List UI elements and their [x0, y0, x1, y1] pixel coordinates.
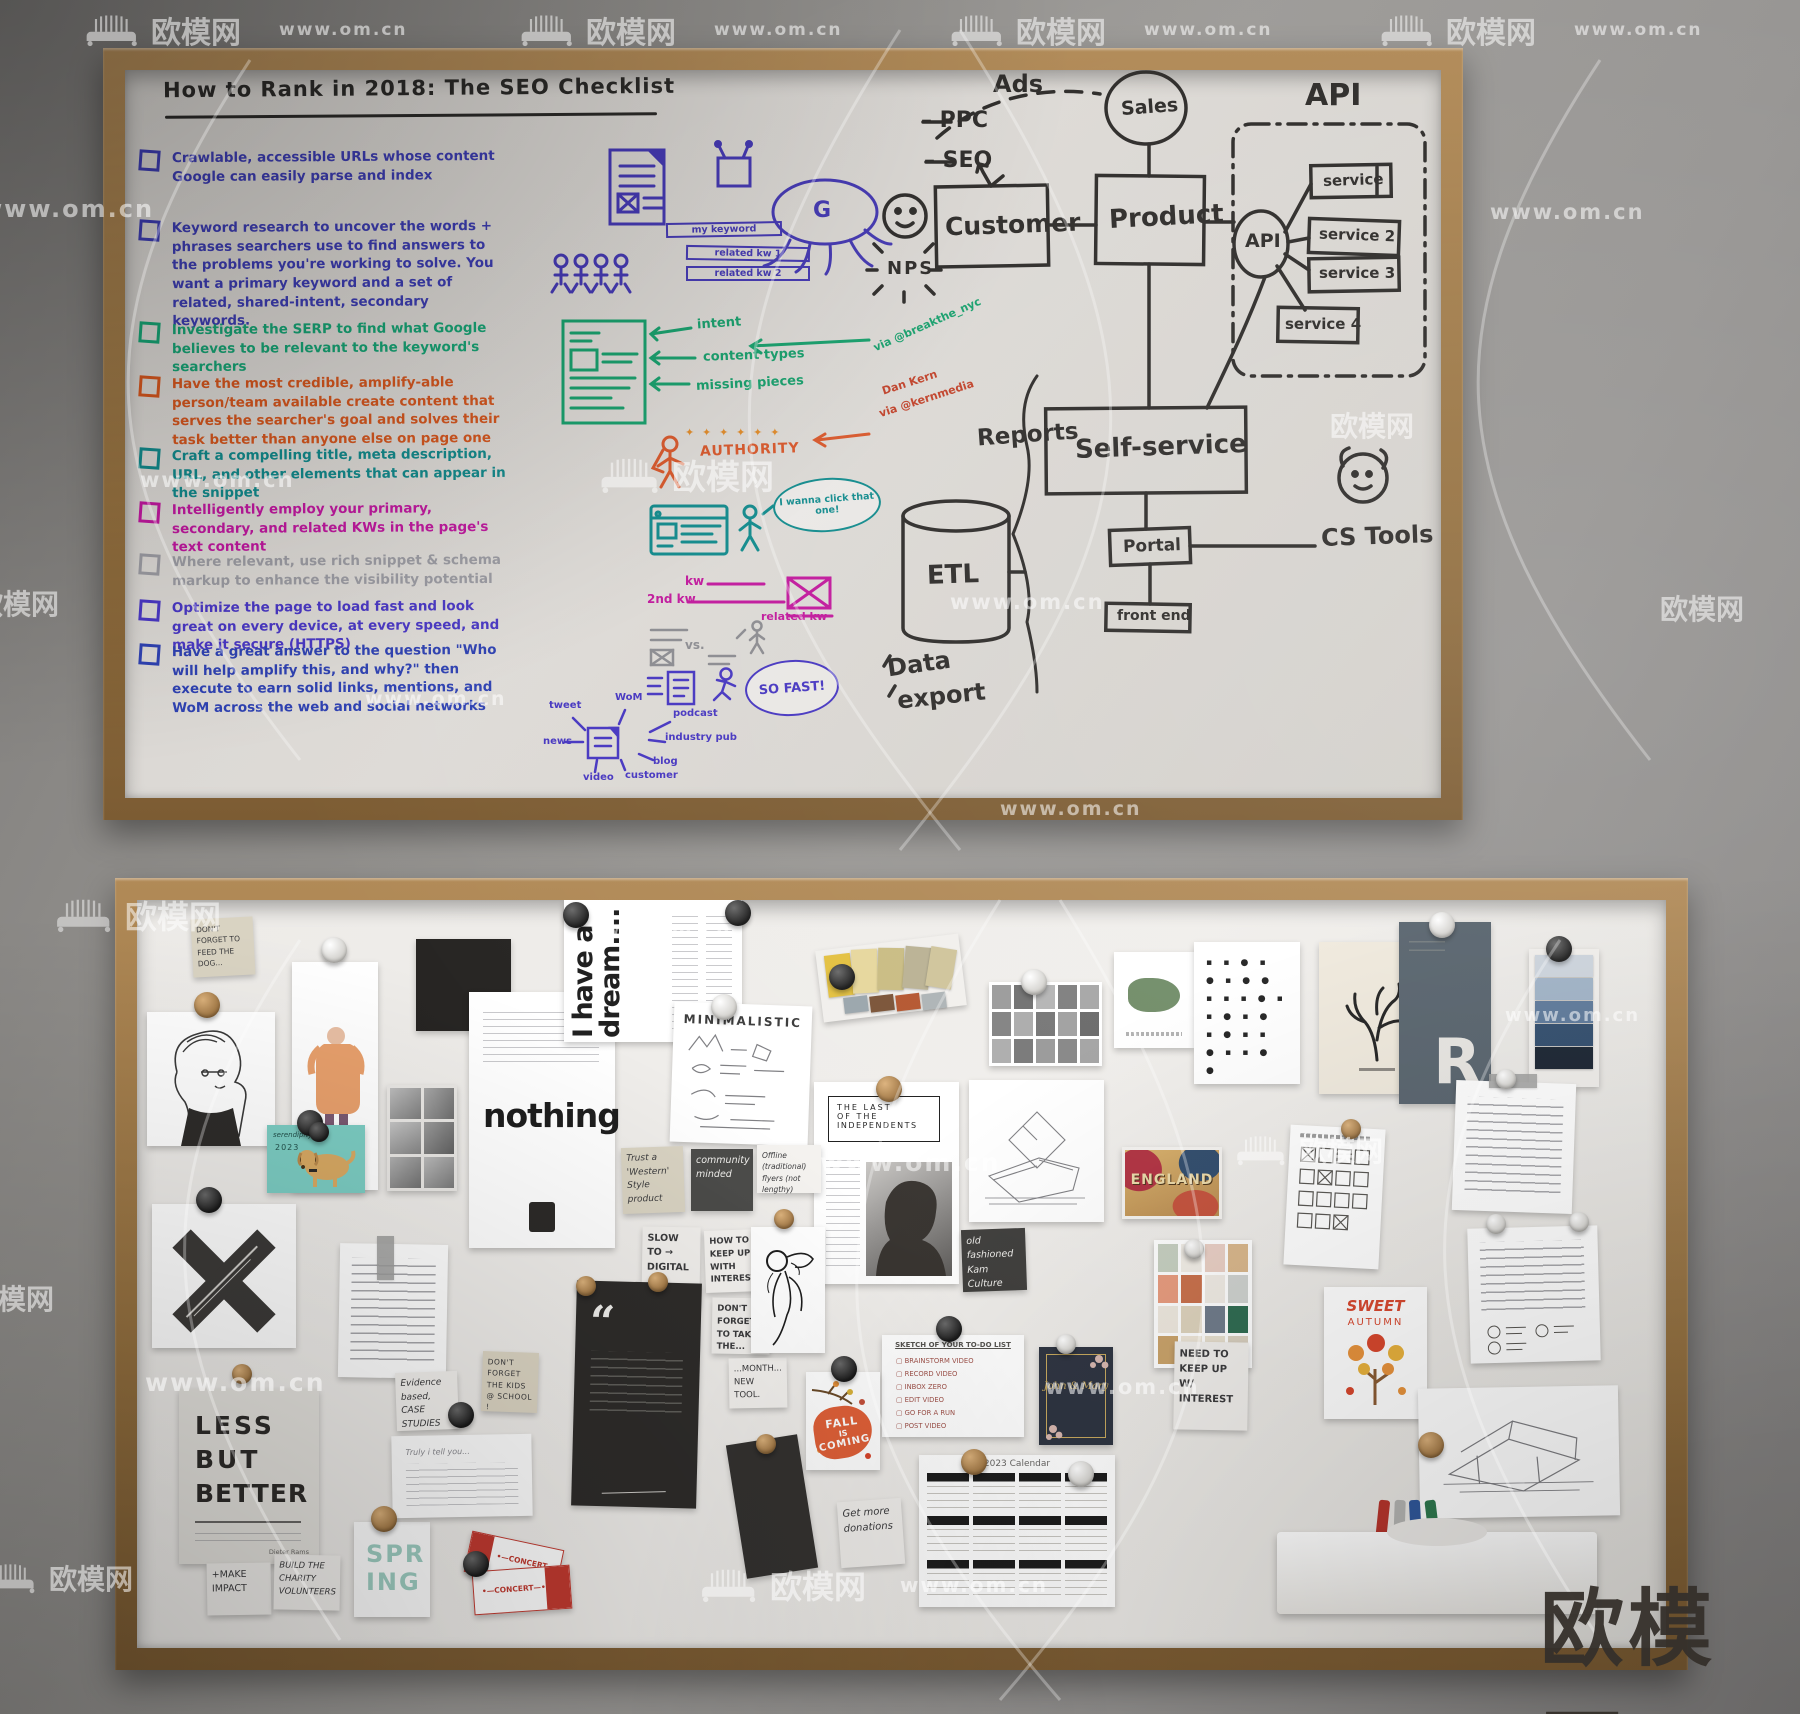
fall-coming-card: FALL IS COMING — [806, 1372, 880, 1470]
sofa-logo-icon — [1380, 13, 1436, 47]
chip — [1228, 1244, 1248, 1272]
glyph-grid-card: ▪ ▪ ● ▪ ● ▪ ● ● ▪ ▪ ▪ ● ▪ ▪ ● ▪ ● ▪ ● ▪ … — [1194, 942, 1300, 1084]
bw-photo-strip — [387, 1085, 457, 1191]
swatch-tan — [925, 946, 957, 990]
todo-text: BRAINSTORM VIDEO — [905, 1357, 974, 1365]
todo-text: GO FOR A RUN — [905, 1409, 956, 1417]
tray-notch — [1387, 1518, 1487, 1546]
node-sales: Sales — [1120, 94, 1179, 120]
related-kw-label: related kw — [761, 610, 827, 623]
concert-ticket: •—CONCERT—• — [472, 1565, 573, 1616]
hub-tweet: tweet — [549, 700, 581, 711]
independents-card: THE LAST OF THE INDEPENDENTS — [814, 1082, 959, 1284]
todo-text: INBOX ZERO — [905, 1383, 947, 1391]
magnet — [1496, 1069, 1516, 1089]
mini-month — [973, 1560, 1015, 1599]
magnet — [1056, 1334, 1076, 1354]
node-customer: Customer — [945, 208, 1081, 242]
kw-label: kw — [685, 574, 704, 588]
hub-podcast: podcast — [673, 708, 718, 719]
watermark-brand: 欧模网 — [1446, 8, 1536, 52]
magnet — [371, 1506, 397, 1532]
invite-flowers — [1039, 1347, 1113, 1445]
watermark-url-fragment: www.om.cn — [1490, 200, 1645, 224]
moodboard-frame: DON'T FORGET TO FEED THE DOG... — [115, 878, 1688, 1670]
moodboard-face: DON'T FORGET TO FEED THE DOG... — [137, 900, 1666, 1648]
watermark-group: 欧模网 www.om.cn — [1380, 8, 1703, 52]
spring-word-2: ING — [366, 1568, 421, 1596]
make-impact-note: +MAKE IMPACT — [207, 1562, 272, 1615]
magnet — [961, 1449, 987, 1475]
need-interest-note: NEED TO KEEP UP W/ INTEREST — [1173, 1341, 1249, 1430]
todo-text: EDIT VIDEO — [905, 1396, 944, 1404]
hand-calendar-card — [1283, 1125, 1385, 1270]
watermark-url: www.om.cn — [1144, 20, 1273, 40]
bw-photo — [424, 1157, 455, 1188]
magnet — [711, 994, 737, 1020]
magnet — [194, 992, 220, 1018]
r-poster: R — [1399, 922, 1491, 1104]
minimalistic-sheet: MINIMALISTIC — [670, 1002, 813, 1147]
poster-smalltext — [195, 1527, 301, 1545]
todo-item: ▢ POST VIDEO — [896, 1420, 974, 1433]
bw-photo — [390, 1122, 421, 1153]
todo-item: ▢ GO FOR A RUN — [896, 1407, 974, 1420]
grid-photo — [992, 1012, 1011, 1036]
less-word: LESS — [195, 1411, 275, 1440]
margin-doodles — [1467, 1225, 1600, 1363]
watermark-url: www.om.cn — [279, 20, 408, 40]
google-spider-letter: G — [813, 198, 831, 223]
letter-card-right-2 — [1467, 1225, 1600, 1363]
community-note: community minded — [691, 1149, 753, 1211]
watermark-brand-fragment: 欧模网 — [1660, 588, 1744, 628]
grid-photo — [1080, 1012, 1099, 1036]
magnet — [936, 1316, 962, 1342]
watermark-brand: 欧模网 — [1660, 588, 1744, 628]
dark-card-small — [726, 1434, 818, 1579]
second-kw-label: 2nd kw — [647, 592, 696, 606]
chip — [1228, 1306, 1248, 1334]
todo-text: POST VIDEO — [905, 1422, 947, 1430]
watermark-url: www.om.cn — [1574, 20, 1703, 40]
todo-item: ▢ EDIT VIDEO — [896, 1394, 974, 1407]
api-region-title: API — [1305, 78, 1361, 113]
portrait-sketch-illustration — [147, 1012, 275, 1146]
magnet — [1068, 1461, 1094, 1487]
ticket-stub — [544, 1566, 571, 1610]
grid-photo — [1036, 1012, 1055, 1036]
chip — [1181, 1275, 1201, 1303]
nothing-title: nothing — [483, 1096, 620, 1135]
mini-month — [927, 1560, 969, 1599]
swatch-navy — [1535, 1024, 1593, 1046]
node-nps: NPS — [887, 258, 934, 279]
chip — [1205, 1306, 1225, 1334]
watermark-brand: 欧模网 — [151, 8, 241, 52]
ink-scribble-card — [751, 1227, 825, 1353]
todo-item: ▢ RECORD VIDEO — [896, 1368, 974, 1381]
blue-swatch-fan — [1529, 949, 1599, 1087]
whiteboard-face: How to Rank in 2018: The SEO Checklist C… — [125, 70, 1441, 798]
node-service2: service 2 — [1319, 225, 1396, 246]
portrait-sketch-card — [147, 1012, 275, 1146]
node-service1: service — [1323, 170, 1384, 190]
bw-photo — [424, 1122, 455, 1153]
mini-month — [1065, 1560, 1107, 1599]
watermark-brand: 欧模网 — [0, 583, 59, 623]
chip — [1158, 1275, 1178, 1303]
bw-photo — [424, 1088, 455, 1119]
green-swatch-card — [1114, 952, 1194, 1048]
trust-note: Trust a 'Western' Style product — [621, 1146, 685, 1214]
magnet — [829, 964, 855, 990]
grid-photo — [1014, 1012, 1033, 1036]
mini-month — [1019, 1473, 1061, 1512]
todo-item: ▢ BRAINSTORM VIDEO — [896, 1355, 974, 1368]
autumn-tree-illustration — [1324, 1287, 1427, 1419]
grid-photo — [992, 1039, 1011, 1063]
chip — [1205, 1275, 1225, 1303]
mini-month — [1019, 1516, 1061, 1555]
architecture-sketch-card-2 — [1418, 1385, 1620, 1518]
swatch-darknavy — [1535, 1047, 1593, 1069]
divider — [195, 1521, 301, 1523]
new-tool-note: ...MONTH... NEW TOOL. — [729, 1357, 788, 1408]
watermark-brand: 欧模网 — [0, 1278, 54, 1318]
swatch-silver — [921, 992, 947, 1011]
magnet — [1341, 1119, 1361, 1139]
kids-school-note: DON'T FORGET THE KIDS @ SCHOOL ! — [481, 1351, 539, 1413]
mini-month — [927, 1516, 969, 1555]
vs-label: vs. — [685, 638, 705, 652]
sofa-logo-icon — [85, 13, 141, 47]
node-ppc: – PPC — [921, 108, 988, 133]
magnet — [1546, 936, 1572, 962]
mini-months — [927, 1473, 1107, 1599]
poster-logo — [529, 1202, 555, 1232]
node-ads: Ads — [993, 70, 1043, 98]
node-front-end: front end — [1117, 608, 1191, 624]
magnet — [463, 1551, 489, 1577]
chip — [1205, 1244, 1225, 1272]
hub-blog: blog — [653, 756, 678, 767]
ticket-label: •—CONCERT—• — [482, 1582, 546, 1595]
node-seo: – SEO — [924, 148, 992, 173]
node-self-service: Self-service — [1075, 429, 1248, 465]
house-perspective-sketch — [1418, 1385, 1620, 1518]
quote-mark: “ — [589, 1297, 616, 1349]
grid-photo — [1080, 985, 1099, 1009]
independents-line3: INDEPENDENTS — [837, 1121, 939, 1130]
magnet — [1418, 1432, 1444, 1458]
hub-wom: WoM — [615, 692, 643, 703]
todo-title: SKETCH OF YOUR TO-DO LIST — [882, 1341, 1024, 1349]
magnet — [648, 1272, 668, 1292]
node-service3: service 3 — [1319, 264, 1395, 282]
magnet — [1569, 1212, 1589, 1232]
truly-note: Truly i tell you... — [391, 1434, 532, 1518]
magnet — [232, 1364, 252, 1384]
swatch-paleyellow — [851, 948, 879, 993]
less-but-better-poster: LESS BUT BETTER Dieter Rams — [179, 1389, 319, 1564]
magnet — [831, 1356, 857, 1382]
mini-month — [973, 1473, 1015, 1512]
calendar-grid-sketch — [1283, 1125, 1385, 1270]
magnet — [1486, 1214, 1506, 1234]
magnet — [876, 1076, 902, 1102]
better-word: BETTER — [195, 1479, 308, 1508]
todo-items: ▢ BRAINSTORM VIDEO ▢ RECORD VIDEO ▢ INBO… — [896, 1355, 974, 1432]
bw-portrait-photo — [866, 1162, 952, 1276]
sofa-logo-icon — [950, 13, 1006, 47]
node-etl: ETL — [926, 559, 979, 591]
sofa-logo-icon — [55, 897, 115, 933]
grid-photo — [1058, 1012, 1077, 1036]
offline-note: Offline (traditional) flyers (not length… — [757, 1145, 821, 1193]
architecture-plan-sketch — [969, 1080, 1104, 1222]
watermark-group: 欧模网 www.om.cn — [520, 8, 843, 52]
handwriting-lines — [406, 1462, 519, 1506]
rendered-scene: How to Rank in 2018: The SEO Checklist C… — [0, 0, 1800, 1714]
swatch-rust — [895, 993, 921, 1012]
swatch-steelblue — [1535, 978, 1593, 1000]
quote-poster: “ — [571, 1280, 702, 1508]
letter-card-right-1 — [1452, 1080, 1576, 1214]
magnet — [309, 1122, 329, 1142]
feed-dog-note: DON'T FORGET TO FEED THE DOG... — [191, 916, 256, 977]
whiteboard-frame: How to Rank in 2018: The SEO Checklist C… — [103, 48, 1463, 820]
grid-photo — [1058, 985, 1077, 1009]
node-portal: Portal — [1123, 535, 1182, 557]
magnet — [321, 937, 347, 963]
magnet — [448, 1402, 474, 1428]
independents-titlebox: THE LAST OF THE INDEPENDENTS — [828, 1096, 940, 1142]
hub-industry-pub: industry pub — [665, 732, 737, 743]
portrait-silhouette — [866, 1162, 952, 1276]
grid-photo — [1014, 1039, 1033, 1063]
signature-line — [601, 1479, 665, 1494]
magnet — [725, 900, 751, 926]
node-cs-tools: CS Tools — [1321, 520, 1434, 552]
hub-customer: customer — [625, 770, 678, 781]
article-text — [826, 1154, 860, 1272]
corner-watermark-brand: 欧模网 — [1540, 1562, 1800, 1714]
mini-month — [1019, 1560, 1061, 1599]
paint-smear — [1128, 978, 1180, 1012]
authority-stars: ✦ ✦ ✦ ✦ ✦ ✦ — [685, 426, 781, 439]
quote-lines — [590, 1351, 684, 1413]
magnet — [774, 1209, 794, 1229]
architecture-sketch-card — [969, 1080, 1104, 1222]
watermark-url: www.om.cn — [1490, 200, 1645, 224]
magnet — [756, 1434, 776, 1454]
my-keyword-box: my keyword — [666, 221, 782, 238]
spring-poster: SPR ING — [354, 1522, 430, 1617]
grid-photo — [1058, 1039, 1077, 1063]
node-product: Product — [1108, 199, 1224, 235]
watermark-brand-fragment: 欧模网 — [0, 583, 59, 623]
photo-grid-card — [989, 982, 1102, 1066]
node-service4: service 4 — [1285, 315, 1361, 333]
sweet-autumn-card: SWEET AUTUMN — [1324, 1287, 1427, 1419]
swatch-brown — [869, 994, 895, 1013]
mini-month — [973, 1516, 1015, 1555]
chip — [1158, 1306, 1178, 1334]
watermark-brand: 欧模网 — [1016, 8, 1106, 52]
hub-video: video — [583, 772, 614, 783]
independents-line2: OF THE — [837, 1112, 939, 1121]
magnet — [1429, 912, 1455, 938]
chip — [1181, 1306, 1201, 1334]
ink-figure-sketch — [751, 1227, 825, 1353]
grid-photo — [1080, 1039, 1099, 1063]
tape — [377, 1236, 394, 1280]
grid-photo — [992, 985, 1011, 1009]
sofa-logo-icon — [0, 1562, 39, 1594]
mini-month — [1065, 1516, 1107, 1555]
mini-month — [927, 1473, 969, 1512]
magnet — [563, 902, 589, 928]
todo-text: RECORD VIDEO — [905, 1370, 958, 1378]
chip — [1228, 1275, 1248, 1303]
spring-word-1: SPR — [366, 1540, 425, 1568]
truly-text: Truly i tell you... — [406, 1447, 470, 1457]
independents-line1: THE LAST — [837, 1103, 939, 1112]
wedding-invite-card: John & Mary — [1039, 1347, 1113, 1445]
swatch-gray — [843, 995, 869, 1014]
swatch-khaki — [878, 948, 905, 990]
watermark-brand: 欧模网 — [586, 8, 676, 52]
todo-item: ▢ INBOX ZERO — [896, 1381, 974, 1394]
todo-list-card: SKETCH OF YOUR TO-DO LIST ▢ BRAINSTORM V… — [882, 1335, 1024, 1437]
related-kw2-box: related kw 2 — [686, 266, 810, 281]
watermark-group: 欧模网 www.om.cn — [950, 8, 1273, 52]
bw-photo — [390, 1157, 421, 1188]
handwriting-lines — [1464, 1096, 1563, 1199]
magnet — [1021, 969, 1047, 995]
sofa-logo-icon — [520, 13, 576, 47]
charity-note: BUILD THE CHARITY VOLUNTEERS — [274, 1554, 341, 1610]
related-kw1-box: related kw 1 — [686, 245, 810, 262]
magnet — [1184, 1239, 1204, 1259]
magnet — [576, 1276, 596, 1296]
x-poster — [152, 1204, 296, 1348]
swatch-blue — [1535, 1001, 1593, 1023]
watermark-url: www.om.cn — [714, 20, 843, 40]
node-api: API — [1245, 230, 1281, 252]
old-fashioned-note: old fashioned Kam Culture — [961, 1228, 1027, 1292]
minimalistic-sketches — [670, 1002, 813, 1147]
donations-note: Get more donations — [837, 1498, 905, 1568]
micro-caption — [1126, 1032, 1182, 1036]
watermark-group: 欧模网 www.om.cn — [85, 8, 408, 52]
watermark-group: 欧模网 — [0, 1558, 133, 1598]
watermark-brand-fragment: 欧模网 — [0, 1278, 54, 1318]
but-word: BUT — [195, 1445, 260, 1474]
magnet — [196, 1187, 222, 1213]
chip — [1158, 1244, 1178, 1272]
bw-photo — [390, 1088, 421, 1119]
england-postcard: ENGLAND — [1122, 1147, 1222, 1219]
hub-news: news — [543, 736, 572, 747]
intent-label: intent — [697, 314, 742, 332]
grid-photo — [1036, 1039, 1055, 1063]
england-title: ENGLAND — [1125, 1172, 1219, 1188]
